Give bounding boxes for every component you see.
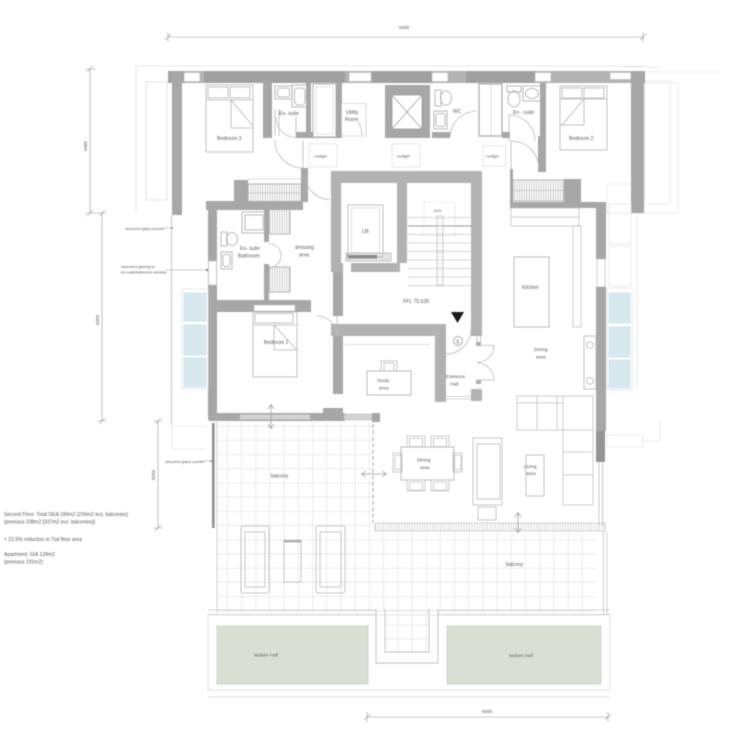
svg-text:5059: 5059 [151,469,156,480]
svg-text:6480: 6480 [399,25,410,30]
svg-text:En- suite: En- suite [279,111,299,117]
svg-text:area: area [526,471,536,477]
svg-text:Bedroom 3: Bedroom 3 [217,136,242,142]
svg-text:Dining: Dining [534,347,548,353]
svg-text:area: area [536,355,546,361]
svg-text:sedum roof: sedum roof [509,653,534,659]
svg-text:Dining: Dining [417,458,431,464]
svg-text:Second Floor: Total GEA 184m2: Second Floor: Total GEA 184m2 (239m2 inc… [4,512,128,518]
svg-text:Kitchen: Kitchen [522,285,539,291]
svg-text:obscured glass screen: obscured glass screen [165,459,204,464]
svg-text:En - suite: En - suite [513,110,534,116]
svg-text:= 22.5% reduction in Ttal floo: = 22.5% reduction in Ttal floor area [4,537,82,543]
svg-text:Bedroom 2: Bedroom 2 [569,136,594,142]
svg-text:area: area [420,465,430,471]
svg-text:area: area [379,386,389,392]
svg-text:balcony: balcony [506,562,524,568]
svg-text:FFL 75.535: FFL 75.535 [403,299,429,305]
svg-text:obscured glazing to: obscured glazing to [121,264,155,269]
svg-text:(previous 191m2): (previous 191m2) [4,560,43,566]
svg-text:WC: WC [453,109,462,115]
svg-text:area: area [299,253,309,259]
svg-text:obscured glass screen: obscured glass screen [125,226,164,231]
svg-text:sedum roof: sedum roof [254,653,279,659]
svg-text:Utility: Utility [346,110,359,116]
svg-text:Lift: Lift [362,229,369,235]
svg-text:Bathroom: Bathroom [238,254,260,260]
svg-text:Entrance: Entrance [446,374,466,380]
svg-text:Bedroom 1: Bedroom 1 [264,340,289,346]
svg-text:4300: 4300 [95,314,100,325]
svg-text:8000: 8000 [482,709,493,714]
svg-text:Hall: Hall [450,382,458,388]
svg-text:balcony: balcony [271,474,289,480]
svg-text:Living: Living [524,464,537,470]
svg-text:4460: 4460 [83,140,88,151]
svg-text:en-suite/bathroom window: en-suite/bathroom window [121,270,167,275]
svg-text:Study: Study [377,378,390,384]
svg-text:rooflight: rooflight [314,155,327,159]
svg-text:rooflight: rooflight [486,155,499,159]
svg-text:Room: Room [345,117,358,123]
svg-text:AOV: AOV [434,209,442,213]
svg-text:dressing: dressing [295,245,314,251]
svg-text:En- suite: En- suite [240,246,260,252]
svg-text:(previous 238m2 [337m2 incl. b: (previous 238m2 [337m2 incl. balconies]) [4,520,95,526]
svg-text:Apartment: GIA 139m2: Apartment: GIA 139m2 [4,552,55,558]
svg-text:rooflight: rooflight [397,155,410,159]
